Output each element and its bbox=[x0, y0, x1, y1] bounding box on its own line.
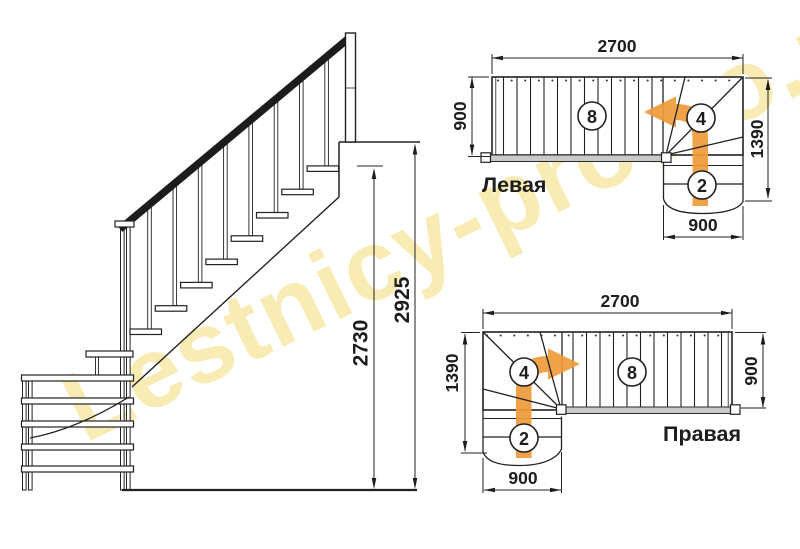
plan-label-right: Правая bbox=[663, 422, 741, 446]
top-newel-post bbox=[346, 33, 356, 142]
dim-900-bottom-right-label: 900 bbox=[508, 468, 537, 488]
dim-2700-left-label: 2700 bbox=[598, 36, 637, 56]
stringer-strip-right-plan bbox=[565, 407, 737, 414]
dim-1390-right-label: 1390 bbox=[442, 353, 462, 392]
plan-label-left: Левая bbox=[482, 173, 546, 197]
dim-900-width-left-label: 900 bbox=[450, 101, 470, 130]
lower-count-right: 2 bbox=[519, 429, 529, 449]
plan-view-right: 2700 1390 900 bbox=[442, 291, 766, 493]
newel-square bbox=[662, 153, 672, 163]
winder-treads bbox=[22, 351, 134, 472]
dimension-2700-right: 2700 bbox=[483, 291, 732, 329]
dimension-2730: 2730 bbox=[350, 166, 384, 489]
dimension-1390-left: 1390 bbox=[745, 78, 772, 201]
lower-newel-cap bbox=[115, 221, 134, 227]
handrail bbox=[120, 38, 349, 229]
dimension-900-width-right: 900 bbox=[735, 333, 766, 409]
dimension-2925: 2925 bbox=[391, 144, 417, 490]
newel-square bbox=[557, 405, 567, 415]
newel-square bbox=[731, 405, 741, 415]
side-elevation-view: 2730 2925 bbox=[22, 33, 421, 490]
dimension-900-width-left: 900 bbox=[450, 77, 490, 157]
dim-2925-label: 2925 bbox=[391, 276, 414, 323]
winder-count-right: 4 bbox=[519, 363, 529, 383]
straight-count-right: 8 bbox=[627, 363, 637, 383]
winder-count-left: 4 bbox=[696, 109, 706, 129]
dimension-900-bottom-right: 900 bbox=[483, 452, 562, 493]
dim-2730-label: 2730 bbox=[350, 320, 373, 367]
staircase-drawing: Lestnicy-prosto.ru bbox=[0, 0, 800, 549]
stringer-line bbox=[132, 197, 339, 387]
dim-900-bottom-left-label: 900 bbox=[688, 215, 717, 235]
stringer-strip-left-plan bbox=[490, 155, 662, 162]
newel-square bbox=[481, 153, 491, 163]
dimension-1390-right: 1390 bbox=[442, 333, 487, 454]
dim-1390-left-label: 1390 bbox=[747, 119, 767, 158]
drawing-canvas: 2730 2925 bbox=[0, 0, 800, 549]
lower-count-left: 2 bbox=[697, 176, 707, 196]
dimension-2700-left: 2700 bbox=[492, 36, 743, 74]
dim-2700-right-label: 2700 bbox=[601, 291, 640, 311]
straight-count-left: 8 bbox=[587, 107, 597, 127]
dim-900-width-right-label: 900 bbox=[741, 356, 761, 385]
plan-view-left: 2700 900 1390 bbox=[450, 36, 772, 240]
